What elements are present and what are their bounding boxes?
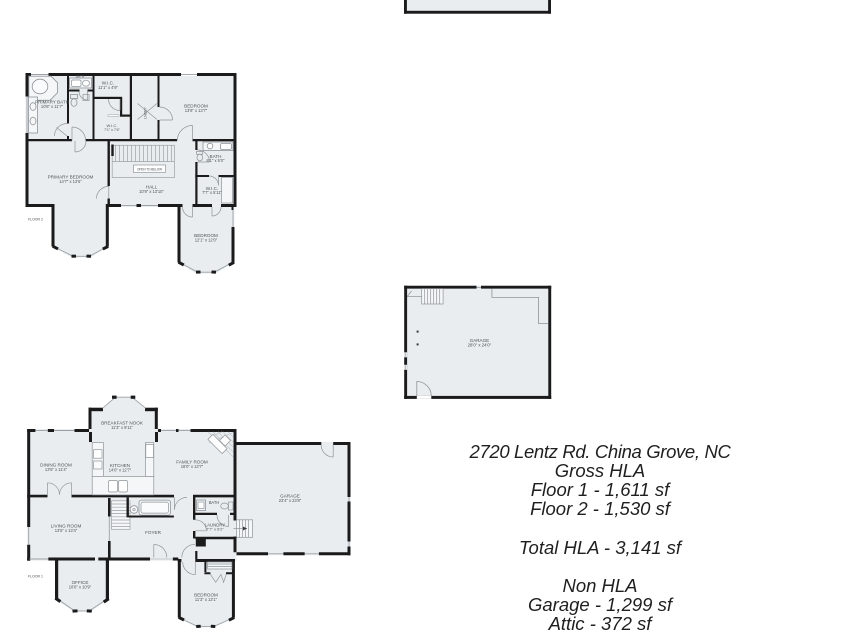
- svg-text:13'5" x 13'4": 13'5" x 13'4": [55, 528, 78, 533]
- svg-text:BATH: BATH: [76, 75, 85, 79]
- svg-text:18'0" x 13'7": 18'0" x 13'7": [181, 464, 204, 469]
- svg-text:13'5" x 11'4": 13'5" x 11'4": [45, 467, 68, 472]
- svg-text:FLOOR 2: FLOOR 2: [28, 218, 43, 222]
- svg-text:OPEN TO BELOW: OPEN TO BELOW: [137, 167, 162, 171]
- svg-text:12'1" x 12'0": 12'1" x 12'0": [195, 237, 218, 242]
- svg-text:10'9" x 13'10": 10'9" x 13'10": [139, 189, 164, 194]
- svg-text:BATH: BATH: [209, 500, 220, 505]
- svg-text:11'1" x 4'9": 11'1" x 4'9": [98, 85, 118, 90]
- svg-text:10'6" x 10'9": 10'6" x 10'9": [69, 584, 92, 589]
- svg-text:LNDRY: LNDRY: [144, 107, 148, 119]
- svg-text:14'7" x 13'6": 14'7" x 13'6": [59, 179, 82, 184]
- svg-text:11'3" x 13'1": 11'3" x 13'1": [195, 597, 218, 602]
- svg-text:8'1" x 5'0": 8'1" x 5'0": [207, 158, 225, 163]
- svg-text:23'4" x 23'8": 23'4" x 23'8": [279, 498, 302, 503]
- svg-text:7'7" x 5'11": 7'7" x 5'11": [202, 190, 222, 195]
- svg-text:11'3" x 9'11": 11'3" x 9'11": [111, 425, 133, 430]
- svg-text:FLOOR 1: FLOOR 1: [28, 575, 43, 579]
- svg-text:28'0" x 24'0": 28'0" x 24'0": [468, 343, 492, 348]
- svg-text:14'0" x 12'7": 14'0" x 12'7": [109, 467, 132, 472]
- svg-text:10'8" x 11'7": 10'8" x 11'7": [41, 104, 64, 109]
- svg-text:13'8" x 13'7": 13'8" x 13'7": [185, 108, 208, 113]
- svg-text:FOYER: FOYER: [145, 530, 162, 535]
- svg-text:7'7" x 6'2": 7'7" x 6'2": [206, 526, 224, 531]
- svg-text:7'1" x 7'6": 7'1" x 7'6": [104, 128, 120, 132]
